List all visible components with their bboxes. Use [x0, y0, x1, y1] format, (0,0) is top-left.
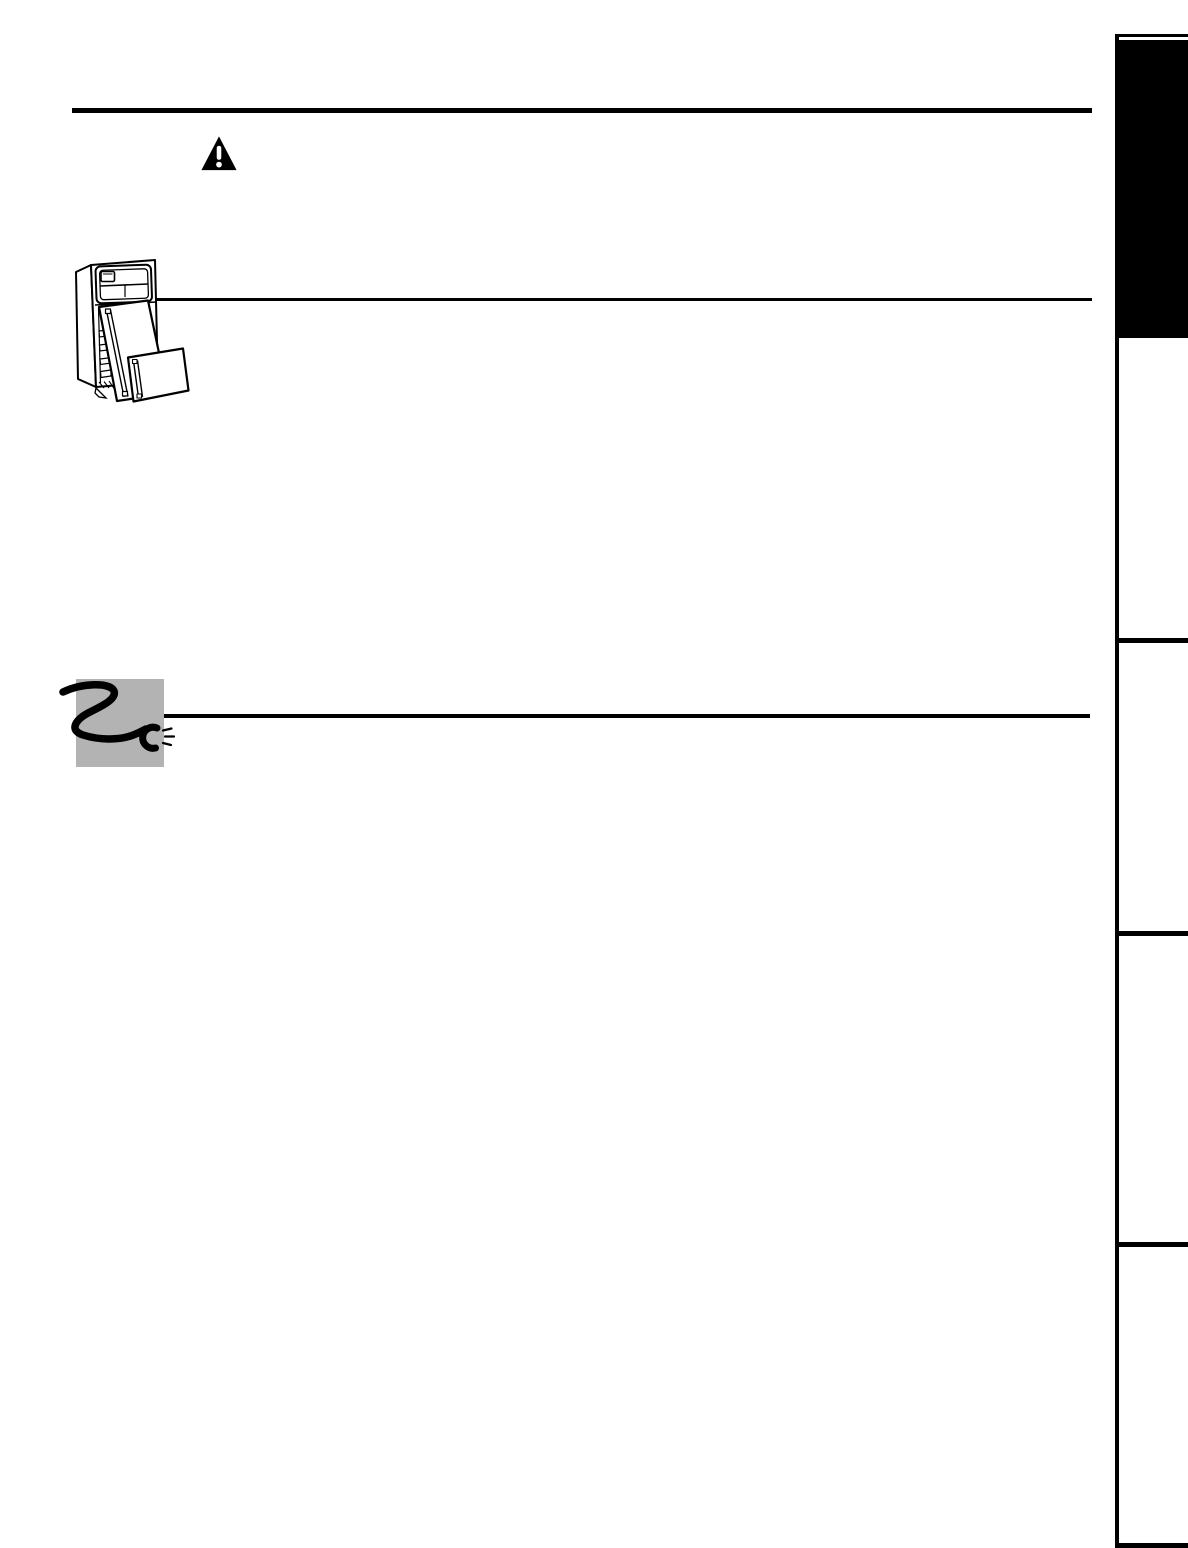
freezer-door-leaning [128, 349, 189, 402]
section-tab-3 [1115, 643, 1188, 931]
section-tab-4 [1115, 936, 1188, 1242]
sidebar-divider-2 [1115, 931, 1188, 936]
warning-triangle-icon [200, 135, 238, 173]
manual-page [0, 0, 1188, 1548]
plug-prong-lines [163, 729, 174, 746]
section-tab-5 [1115, 1247, 1188, 1543]
sidebar-divider-3 [1115, 1242, 1188, 1247]
gray-panel [76, 679, 164, 767]
refrigerator-doors-removed-illustration [66, 255, 198, 405]
section-tab-1-active [1115, 34, 1188, 338]
freezer-compartment [95, 265, 152, 304]
power-cord-section-rule [163, 714, 1090, 718]
section-tab-sidebar [1115, 0, 1188, 1548]
refrigerator-section-rule [153, 298, 1092, 301]
sidebar-divider-1 [1115, 638, 1188, 643]
sidebar-bottom-bar [1115, 1543, 1188, 1548]
section-tab-2 [1115, 343, 1188, 638]
power-cord-plug-illustration [58, 678, 178, 770]
active-tab-top-stripe [1119, 37, 1188, 40]
top-heading-rule [72, 108, 1092, 113]
